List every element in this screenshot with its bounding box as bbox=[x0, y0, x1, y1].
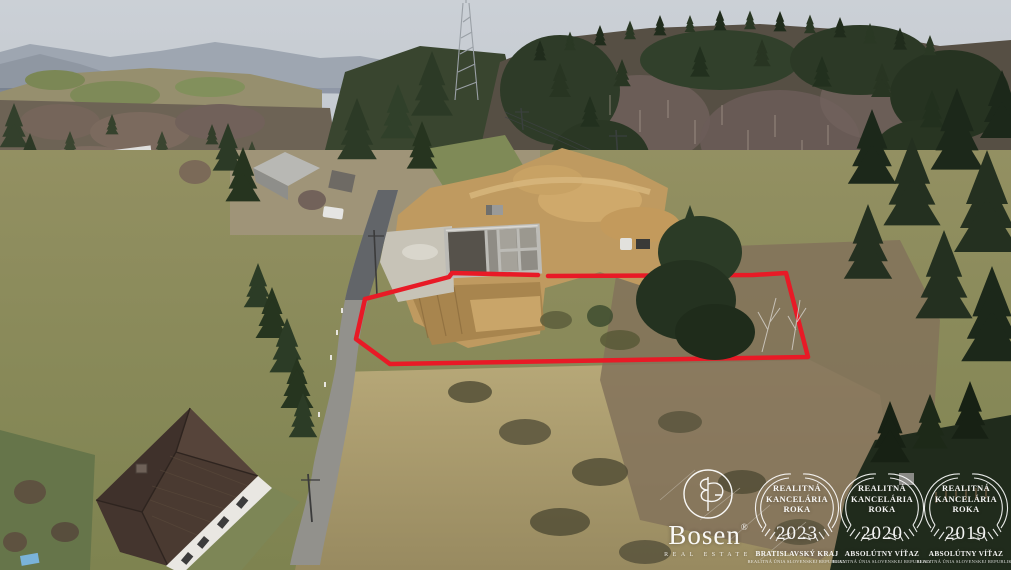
landscape-scene bbox=[0, 0, 1011, 570]
aerial-photo: Bosen® REAL ESTATE REALITNÁ KANCELÁRIA R… bbox=[0, 0, 1011, 570]
building-foundation bbox=[446, 226, 540, 277]
